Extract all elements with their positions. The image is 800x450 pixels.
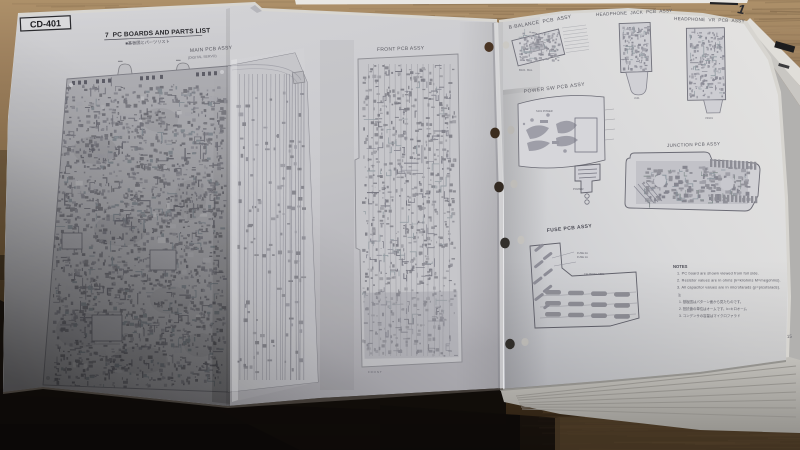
- svg-text:FUSE 2A: FUSE 2A: [577, 251, 588, 255]
- svg-text:15: 15: [787, 334, 793, 339]
- svg-text:FUSE 1A: FUSE 1A: [577, 255, 588, 259]
- svg-text:VR101: VR101: [705, 116, 713, 120]
- svg-text:POWER: POWER: [573, 187, 584, 191]
- svg-text:S101 POWER: S101 POWER: [536, 109, 553, 113]
- svg-text:J101: J101: [634, 96, 640, 100]
- svg-text:B101 BAL: B101 BAL: [519, 68, 533, 72]
